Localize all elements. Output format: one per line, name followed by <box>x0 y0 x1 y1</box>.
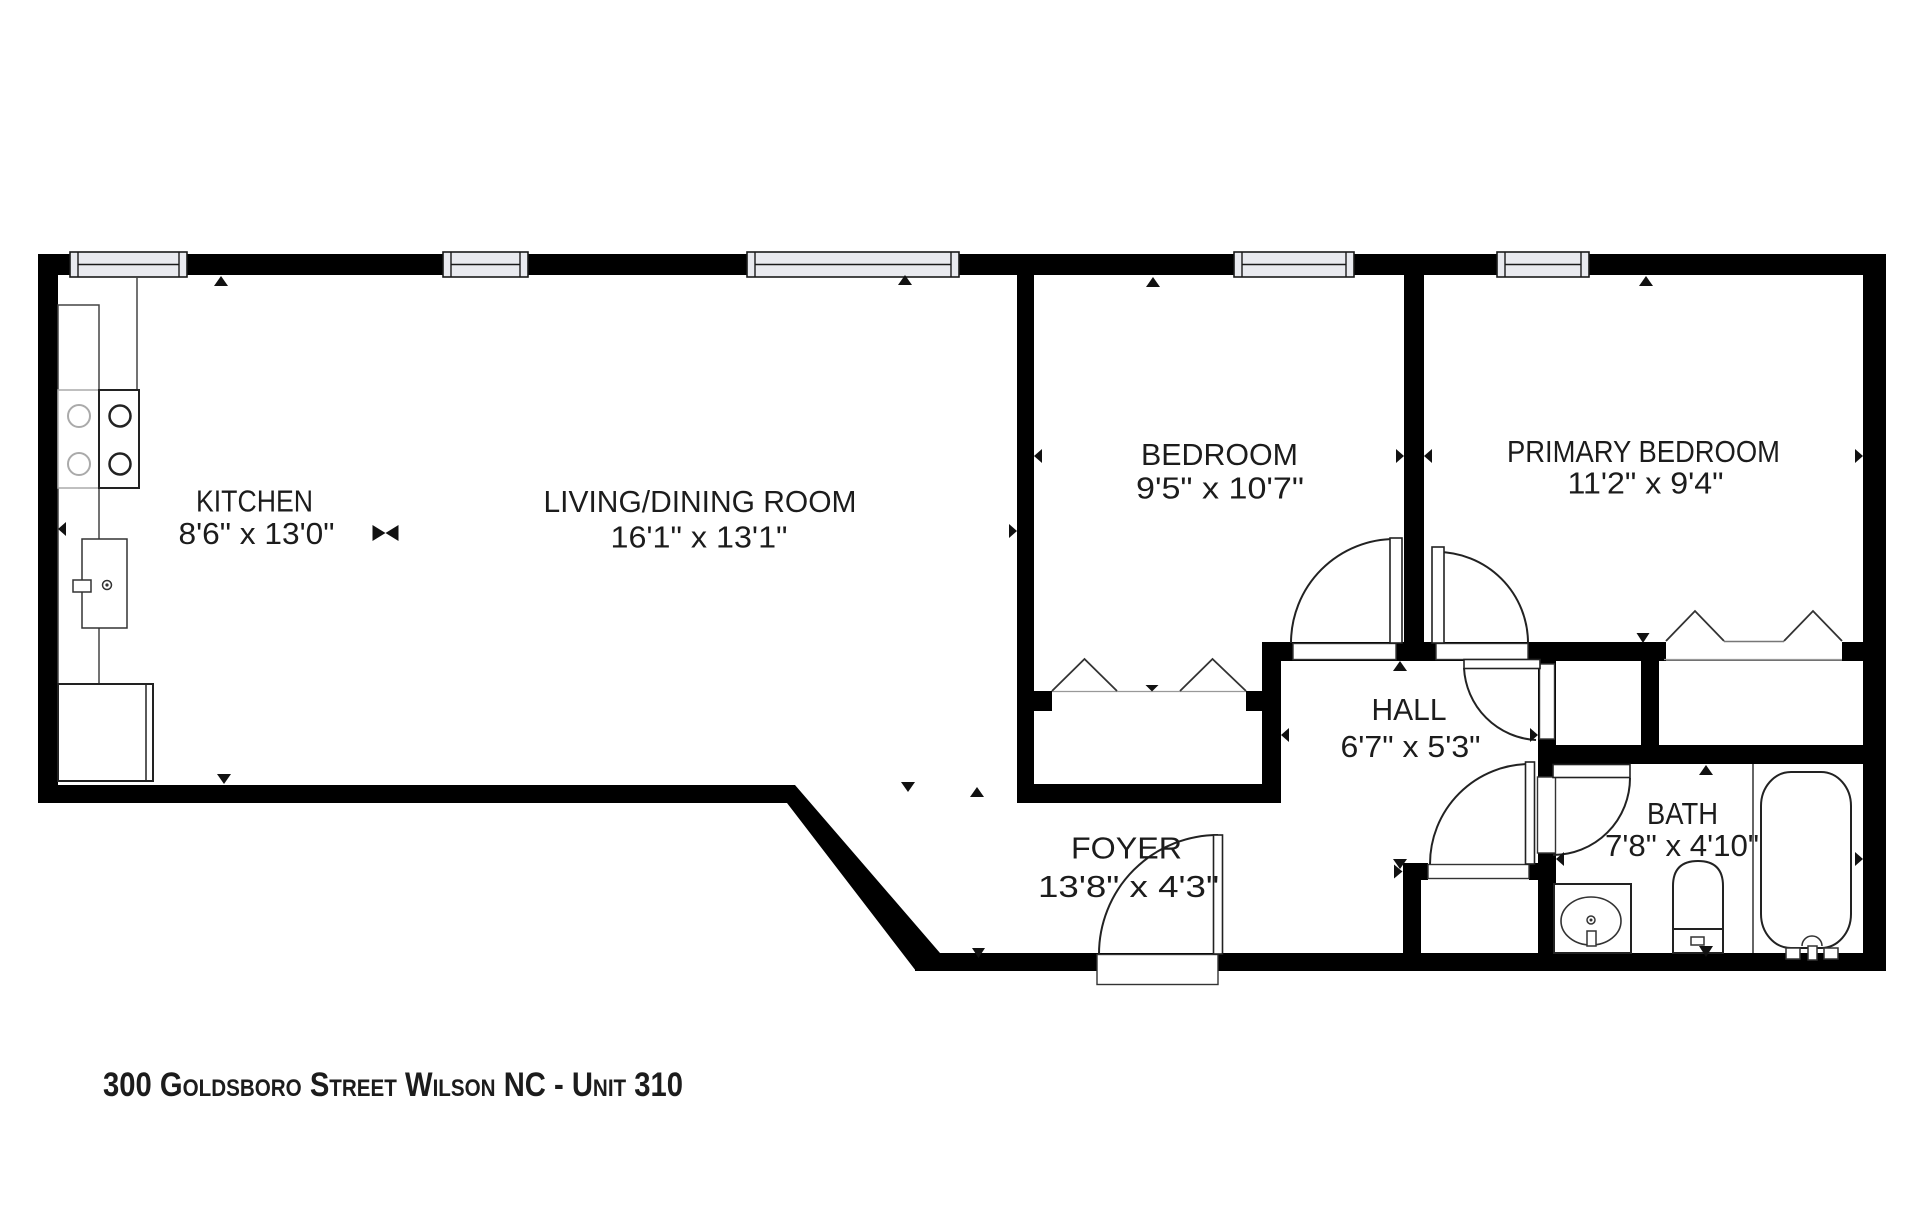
svg-text:6'7" x 5'3": 6'7" x 5'3" <box>1341 729 1481 764</box>
svg-text:BEDROOM: BEDROOM <box>1141 437 1298 472</box>
svg-text:7'8" x 4'10": 7'8" x 4'10" <box>1605 828 1759 863</box>
svg-text:HALL: HALL <box>1372 692 1447 727</box>
svg-text:LIVING/DINING ROOM: LIVING/DINING ROOM <box>544 484 857 519</box>
svg-text:11'2" x 9'4": 11'2" x 9'4" <box>1568 466 1724 501</box>
svg-text:8'6" x 13'0": 8'6" x 13'0" <box>179 516 335 551</box>
svg-text:KITCHEN: KITCHEN <box>196 484 313 519</box>
svg-text:PRIMARY BEDROOM: PRIMARY BEDROOM <box>1507 434 1780 469</box>
svg-text:16'1" x 13'1": 16'1" x 13'1" <box>611 520 788 555</box>
svg-text:FOYER: FOYER <box>1071 831 1182 866</box>
svg-text:BATH: BATH <box>1647 796 1718 831</box>
svg-text:13'8" x 4'3": 13'8" x 4'3" <box>1038 869 1219 904</box>
svg-text:300 Goldsboro Street Wilson NC: 300 Goldsboro Street Wilson NC - Unit 31… <box>103 1066 683 1104</box>
svg-text:9'5" x 10'7": 9'5" x 10'7" <box>1136 471 1304 506</box>
